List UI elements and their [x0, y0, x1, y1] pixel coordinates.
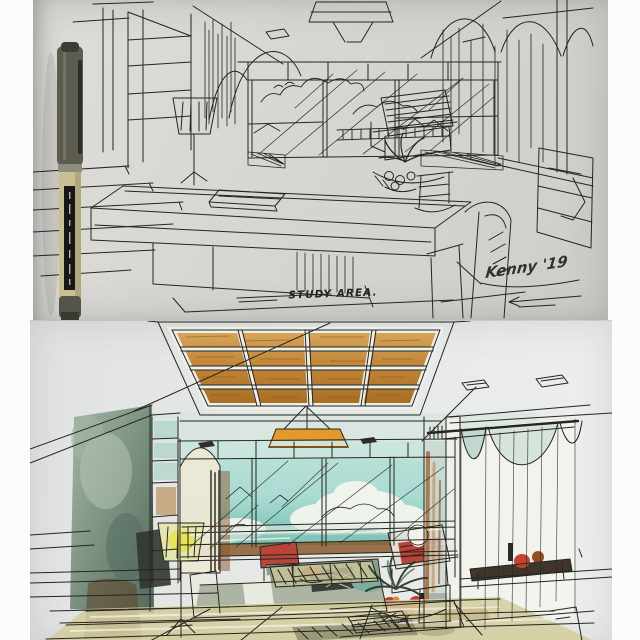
photo-collage: STUDY AREA. Kenny '19	[0, 0, 640, 640]
ink-sketch-study-area: STUDY AREA. Kenny '19	[33, 0, 608, 320]
pen-cap-tip	[61, 42, 79, 52]
watercolor-sketch-photo	[30, 320, 612, 640]
left-cabinet-ink	[103, 8, 301, 168]
pen-clip	[78, 60, 82, 154]
curtains-right-ink	[431, 0, 593, 248]
pen-label-print	[69, 192, 70, 285]
floor-lamp-and-rail-ink	[173, 98, 450, 185]
armchair	[371, 90, 457, 160]
pen-ring	[58, 164, 82, 172]
watercolor-sketch-living-area	[30, 321, 612, 640]
railing	[337, 126, 450, 140]
watercolor-washes	[46, 330, 594, 640]
window-wall-ink	[248, 62, 498, 158]
white-pillar	[446, 419, 460, 629]
shelf-strip	[154, 421, 178, 515]
desk-ink	[91, 150, 503, 298]
planter-hatch	[248, 150, 503, 170]
artist-signature: Kenny '19	[485, 252, 569, 282]
floor-lamp	[173, 98, 217, 185]
fineliner-pen	[42, 42, 83, 320]
glass-reflection-lines	[259, 70, 495, 156]
fruit-bowl	[373, 172, 444, 192]
ceiling-and-pendant-ink	[73, 1, 593, 64]
desk-book	[209, 190, 285, 211]
top-sketch-photo: STUDY AREA. Kenny '19	[33, 0, 608, 320]
pedestal	[415, 172, 455, 212]
area-label: STUDY AREA.	[288, 286, 377, 301]
right-cabinet	[537, 148, 593, 248]
